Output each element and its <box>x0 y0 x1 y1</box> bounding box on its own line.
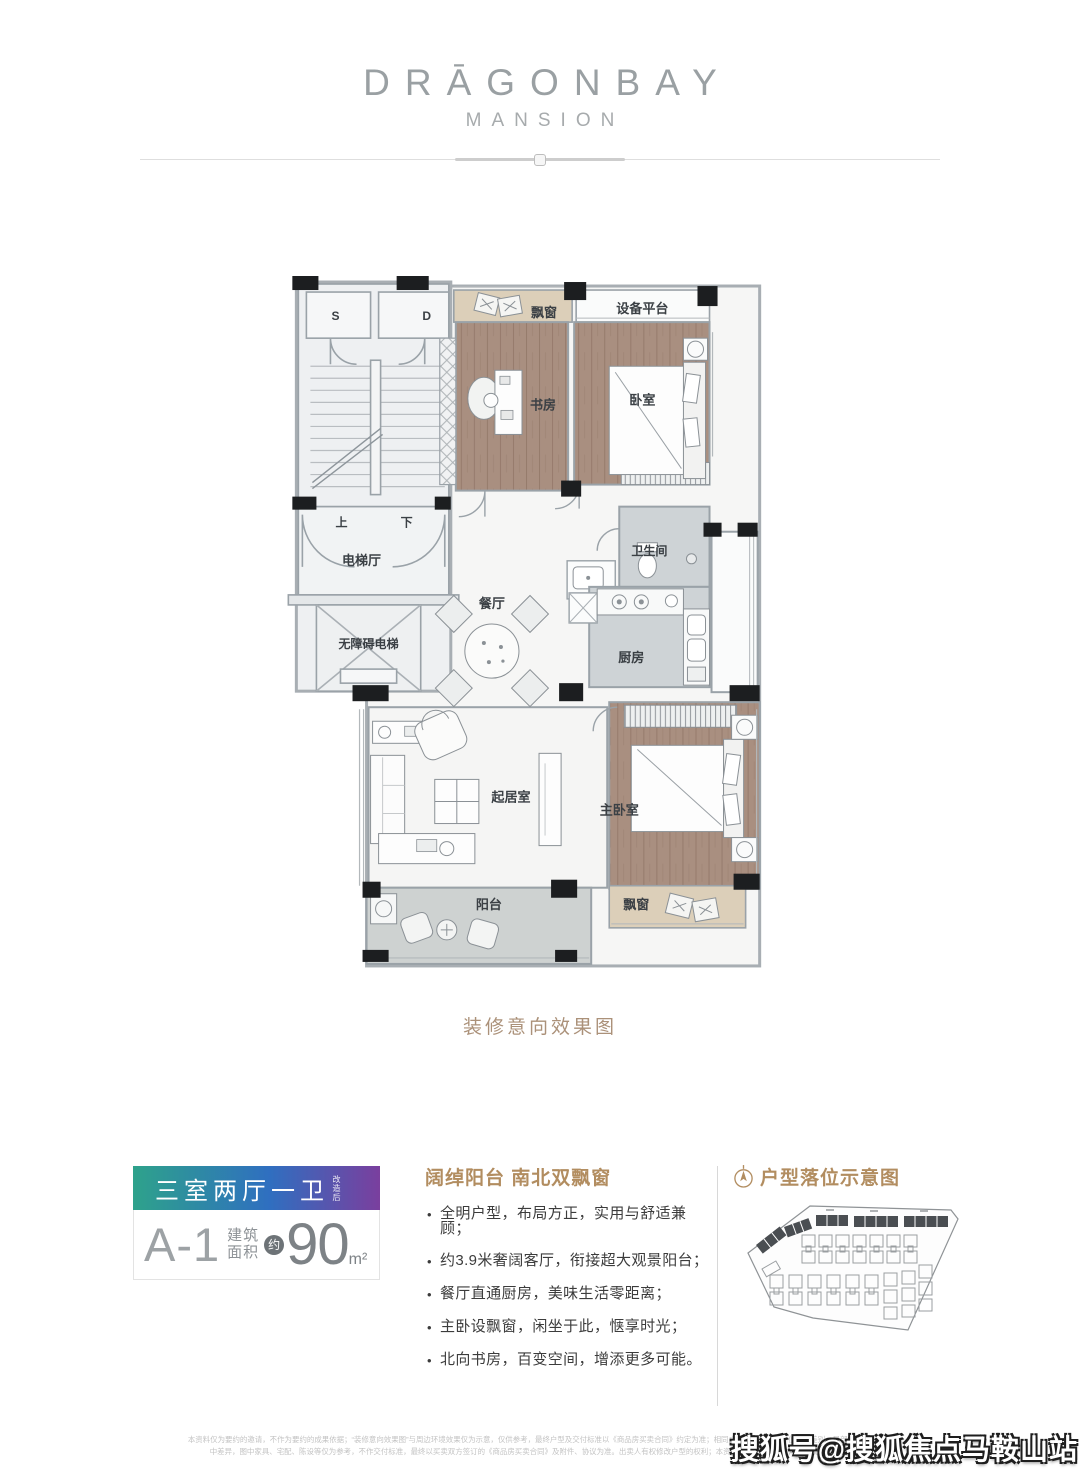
room-label-living: 起居室 <box>490 789 530 804</box>
brand-logo-subtitle: MANSION <box>0 110 1080 132</box>
area-value: 90 <box>286 1211 349 1278</box>
highlight-item: •餐厅直通厨房，美味生活零距离； <box>425 1286 713 1302</box>
highlights-heading: 阔绰阳台 南北双飘窗 <box>425 1163 713 1190</box>
highlight-item: •约3.9米奢阔客厅，衔接超大观景阳台； <box>425 1253 713 1269</box>
area-approx-circle: 约 <box>264 1235 284 1255</box>
highlight-text: 全明户型，布局方正，实用与舒适兼顾； <box>440 1206 713 1236</box>
unit-area-box: A-1 建筑 面积 约 90 m² <box>133 1210 380 1280</box>
bullet-dot: • <box>427 1353 432 1368</box>
header-divider-ornament <box>534 154 546 166</box>
room-label-stair-up: 上 <box>335 515 347 530</box>
highlights-list: •全明户型，布局方正，实用与舒适兼顾； •约3.9米奢阔客厅，衔接超大观景阳台；… <box>425 1206 713 1368</box>
unit-type-label: 三室两厅一卫 <box>133 1171 329 1206</box>
highlight-item: •全明户型，布局方正，实用与舒适兼顾； <box>425 1206 713 1236</box>
side-platform <box>712 532 758 692</box>
highlight-item: •主卧设飘窗，闲坐于此，惬享时光； <box>425 1319 713 1335</box>
highlight-text: 北向书房，百变空间，增添更多可能。 <box>440 1352 702 1367</box>
plan-caption: 装修意向效果图 <box>0 1012 1080 1039</box>
compass-icon <box>733 1164 754 1189</box>
unit-type-note: 改造后 <box>331 1175 341 1202</box>
poster-page: DRĀGONBAY MANSION <box>0 0 1080 1477</box>
room-label-bathroom: 卫生间 <box>631 543 667 558</box>
floor-plan: S D 飘窗 设备平台 书房 卧室 上 下 电梯厅 无障碍电梯 餐厅 卫生间 厨… <box>278 276 770 988</box>
room-label-equipment: 设备平台 <box>616 301 668 316</box>
highlight-text: 约3.9米奢阔客厅，衔接超大观景阳台； <box>440 1253 708 1268</box>
bullet-dot: • <box>427 1320 432 1335</box>
master-bedroom-room <box>593 702 759 889</box>
location-map-title: 户型落位示意图 <box>760 1163 900 1190</box>
living-room <box>369 702 608 888</box>
room-label-study: 书房 <box>530 397 556 412</box>
bullet-dot: • <box>427 1287 432 1302</box>
bullet-dot: • <box>427 1254 432 1269</box>
area-label: 建筑 面积 <box>227 1228 259 1262</box>
location-map-header: 户型落位示意图 <box>733 1163 983 1190</box>
floor-plan-svg: S D 飘窗 设备平台 书房 卧室 上 下 电梯厅 无障碍电梯 餐厅 卫生间 厨… <box>278 276 770 988</box>
unit-badge: 三室两厅一卫 改造后 A-1 建筑 面积 约 90 m² <box>133 1166 380 1280</box>
kitchen-room <box>569 587 709 687</box>
room-label-dining: 餐厅 <box>478 596 505 611</box>
room-label-bay-bottom: 飘窗 <box>623 897 649 912</box>
highlight-text: 餐厅直通厨房，美味生活零距离； <box>440 1286 671 1301</box>
watermark: 搜狐号@搜狐焦点马鞍山站 <box>731 1428 1078 1468</box>
living-window-wall <box>360 709 364 885</box>
location-map-section: 户型落位示意图 <box>733 1163 983 1190</box>
room-label-stair-down: 下 <box>401 516 413 530</box>
area-label-line2: 面积 <box>227 1245 259 1262</box>
room-label-kitchen: 厨房 <box>618 650 644 665</box>
room-label-accessible-elevator: 无障碍电梯 <box>338 636 399 651</box>
site-plan-svg <box>718 1199 984 1351</box>
area-unit: m² <box>349 1251 368 1269</box>
room-label-stair-s: S <box>331 309 339 323</box>
study-room <box>440 322 568 517</box>
room-label-balcony: 阳台 <box>476 897 502 912</box>
brand-logo-title: DRĀGONBAY <box>0 62 1080 104</box>
room-label-stair-d: D <box>422 309 431 323</box>
unit-type-bar: 三室两厅一卫 改造后 <box>133 1166 380 1210</box>
unit-code: A-1 <box>144 1217 220 1272</box>
room-label-master: 主卧室 <box>600 803 639 818</box>
bullet-dot: • <box>427 1207 432 1222</box>
room-label-bay-top: 飘窗 <box>531 305 557 320</box>
highlight-text: 主卧设飘窗，闲坐于此，惬享时光； <box>440 1319 686 1334</box>
area-label-line1: 建筑 <box>227 1228 259 1245</box>
room-label-elevator-hall: 电梯厅 <box>342 553 381 568</box>
room-label-bedroom: 卧室 <box>629 392 655 407</box>
highlights-section: 阔绰阳台 南北双飘窗 •全明户型，布局方正，实用与舒适兼顾； •约3.9米奢阔客… <box>425 1163 713 1385</box>
highlight-item: •北向书房，百变空间，增添更多可能。 <box>425 1352 713 1368</box>
